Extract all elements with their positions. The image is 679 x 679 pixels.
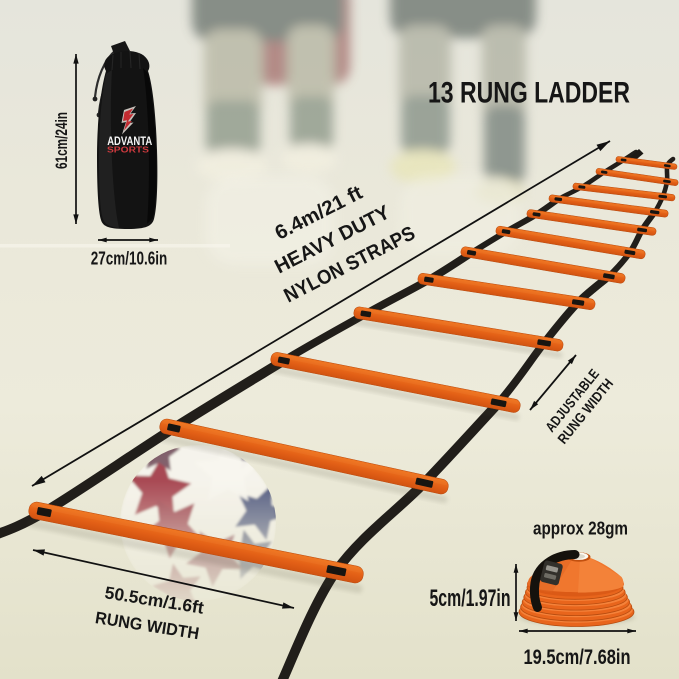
svg-text:61cm/24in: 61cm/24in — [52, 112, 71, 169]
svg-text:19.5cm/7.68in: 19.5cm/7.68in — [524, 646, 631, 669]
svg-text:27cm/10.6in: 27cm/10.6in — [91, 249, 168, 269]
svg-text:13 RUNG LADDER: 13 RUNG LADDER — [428, 77, 630, 110]
svg-text:approx 28gm: approx 28gm — [533, 518, 628, 539]
svg-text:5cm/1.97in: 5cm/1.97in — [430, 585, 511, 612]
svg-text:SPORTS: SPORTS — [107, 146, 150, 155]
